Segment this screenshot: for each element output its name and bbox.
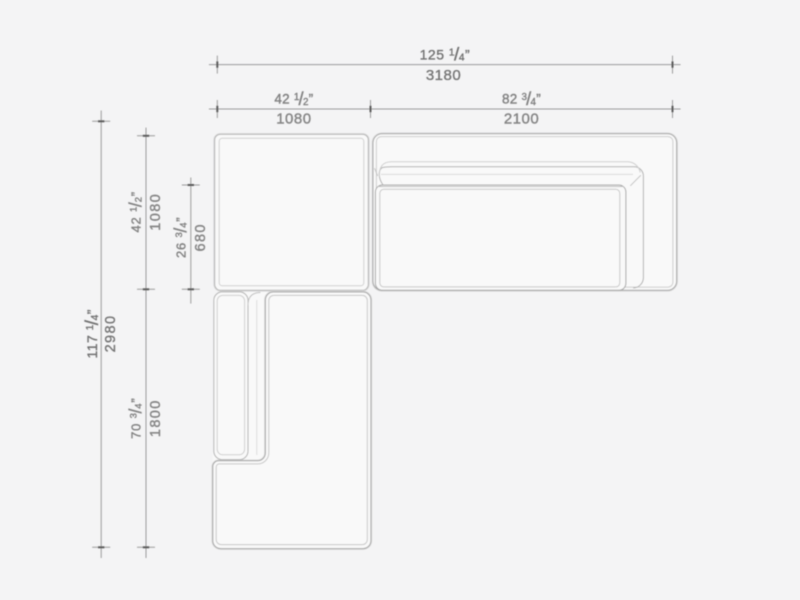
svg-text:680: 680 <box>193 223 209 251</box>
svg-text:1800: 1800 <box>148 399 164 437</box>
svg-text:3180: 3180 <box>426 67 461 84</box>
svg-text:1080: 1080 <box>276 111 311 128</box>
svg-text:2100: 2100 <box>504 111 539 128</box>
svg-text:1080: 1080 <box>148 193 164 231</box>
svg-text:2980: 2980 <box>103 315 119 353</box>
